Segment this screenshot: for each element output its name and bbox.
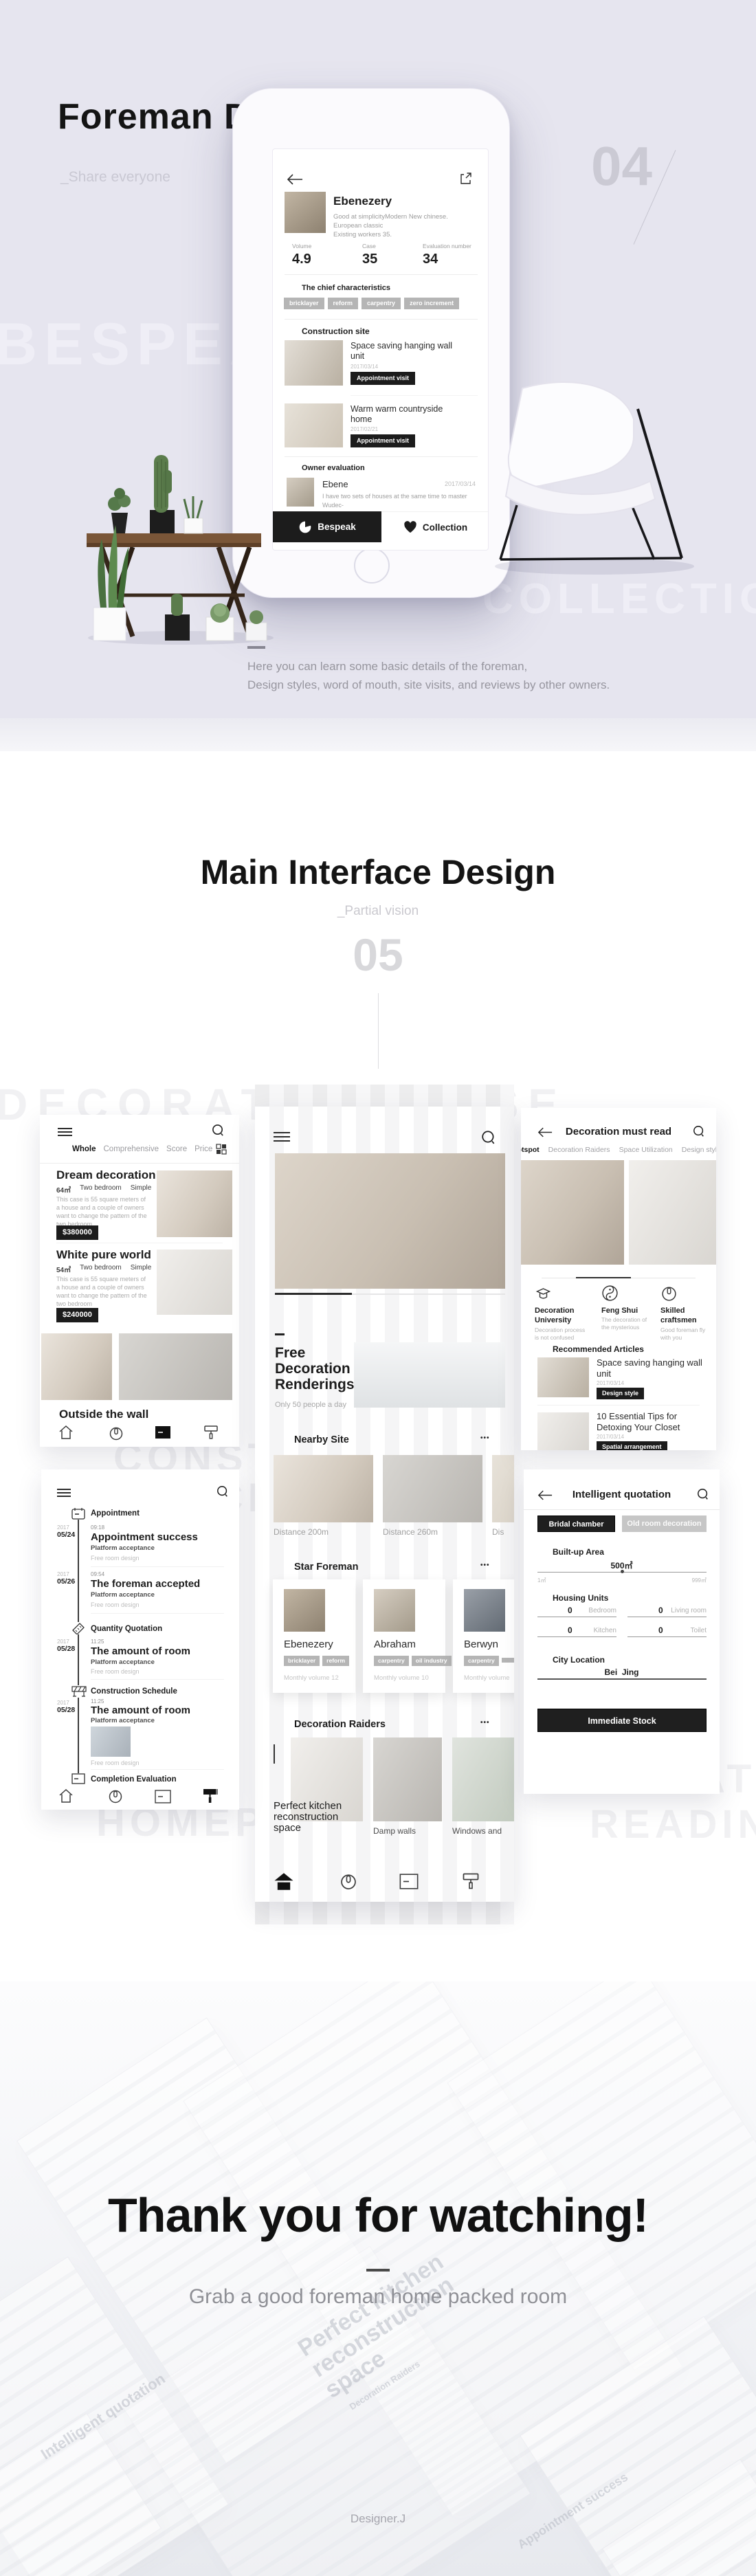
collection-button[interactable]: Collection [381, 511, 489, 542]
carousel-indicator [275, 1293, 352, 1295]
review-date: 2017/03/14 [445, 480, 476, 487]
divider [56, 1243, 223, 1243]
search-icon[interactable] [481, 1130, 496, 1145]
decorate-tab-icon-active[interactable] [202, 1787, 219, 1805]
free-dash [275, 1333, 285, 1335]
area-label: Built-up Area [553, 1547, 604, 1557]
evaluation-title: Owner evaluation [302, 464, 365, 472]
raider-caption: Damp walls [373, 1826, 416, 1836]
raider-photo[interactable] [373, 1737, 442, 1821]
field-underline [537, 1617, 616, 1617]
case-tab-icon[interactable] [155, 1790, 171, 1803]
divider [91, 1613, 224, 1614]
tab-comprehensive[interactable]: Comprehensive [104, 1145, 159, 1153]
screen-homepage: Free Decoration Renderings Only 50 peopl… [255, 1107, 514, 1902]
feature-title: Skilled craftsmen [660, 1306, 715, 1325]
nearby-caption: Distance 260m [383, 1527, 438, 1537]
foreman-card[interactable]: Berwyn carpentry Monthly volume [453, 1579, 514, 1693]
foreman-volume: Monthly volume 10 [374, 1674, 429, 1682]
section-title: Main Interface Design [0, 852, 756, 892]
group-title: Completion Evaluation [91, 1775, 177, 1784]
entry-sub: Platform acceptance [91, 1717, 155, 1724]
back-icon[interactable] [287, 174, 303, 185]
article-photo[interactable] [537, 1412, 589, 1450]
case-title[interactable]: White pure world [56, 1248, 151, 1262]
free-title: Free Decoration Renderings [275, 1345, 361, 1392]
tabbar [41, 1784, 239, 1810]
entry-year: 2017 [57, 1524, 69, 1531]
recommended-title: Recommended Articles [553, 1344, 644, 1354]
area-min: 1㎡ [537, 1577, 546, 1584]
site-photo[interactable] [285, 403, 343, 447]
free-sub: Only 50 people a day [275, 1401, 346, 1409]
entry-date: 05/26 [57, 1577, 75, 1586]
price-badge: $380000 [56, 1225, 98, 1240]
foreman-desc: Good at simplicityModern New chinese. Eu… [333, 212, 448, 239]
entry-note: Free room design [91, 1759, 140, 1766]
foreman-name: Berwyn [464, 1639, 498, 1650]
entry-title[interactable]: The amount of room [91, 1645, 190, 1657]
reviewer-avatar [287, 478, 314, 507]
price-badge: $240000 [56, 1308, 98, 1322]
unit-label-toilet: Toilet [627, 1627, 707, 1634]
section-foreman-details: BESPEAK COLLECTION Foreman Details _Shar… [0, 0, 756, 718]
entry-date: 05/28 [57, 1706, 75, 1714]
divider [537, 1405, 700, 1406]
section-caption: Here you can learn some basic details of… [247, 657, 610, 694]
read-tabs: Hotspot Decoration Raiders Space Utiliza… [521, 1146, 716, 1154]
text-caret [274, 1744, 275, 1764]
screen-decoration-case: Whole Comprehensive Score Price Dream de… [40, 1115, 239, 1447]
divider [40, 1163, 239, 1164]
foreman-avatar [285, 192, 326, 233]
entry-date: 05/24 [57, 1531, 75, 1539]
share-icon[interactable] [460, 172, 472, 184]
tab-whole[interactable]: Whole [72, 1145, 96, 1153]
raider-caption-overlay: Perfect kitchen reconstruction space [274, 1801, 359, 1834]
screen-title: Intelligent quotation [524, 1489, 720, 1500]
heart-icon [403, 521, 417, 533]
strip-photo[interactable] [41, 1333, 112, 1400]
foreman-name: Ebenezery [333, 195, 392, 208]
divider [351, 395, 478, 396]
menu-icon[interactable] [274, 1129, 290, 1144]
divider [285, 274, 478, 275]
search-icon[interactable] [216, 1485, 229, 1498]
field-underline [537, 1636, 616, 1637]
tag[interactable]: bricklayer [284, 298, 324, 309]
screen-quotation: Intelligent quotation Bridal chamber Old… [524, 1469, 720, 1794]
feature-title: Decoration University [535, 1306, 590, 1325]
section-index: 05 [0, 929, 756, 981]
unit-label-bedroom: Bedroom [537, 1607, 616, 1614]
foreman-avatar [464, 1589, 505, 1632]
entry-time: 11:25 [91, 1698, 104, 1705]
schedule-tab-icon[interactable] [108, 1425, 124, 1441]
section-thanks: Perfect kitchen reconstruction space Dec… [0, 1981, 756, 2576]
thanks-dash [366, 2269, 390, 2272]
foreman-name: Ebenezery [284, 1639, 333, 1650]
screen-decoration-read: Decoration must read Hotspot Decoration … [521, 1108, 716, 1450]
strip-photo[interactable] [119, 1333, 232, 1400]
craftsman-icon [660, 1285, 678, 1302]
raider-photo[interactable] [452, 1737, 514, 1821]
article-tag[interactable]: Spatial arrangement [597, 1441, 667, 1450]
feature-sub: Decoration process is not confused [535, 1326, 590, 1342]
tab-raiders[interactable]: Decoration Raiders [548, 1146, 610, 1154]
construction-title: Construction site [302, 326, 370, 336]
search-icon[interactable] [693, 1125, 705, 1137]
feature-title: Feng Shui [601, 1306, 656, 1315]
menu-icon[interactable] [57, 1487, 71, 1499]
tabbar [40, 1419, 239, 1447]
section-subtitle: _Partial vision [0, 904, 756, 919]
entry-photo[interactable] [91, 1726, 131, 1757]
schedule-tab-icon[interactable] [339, 1872, 358, 1891]
characteristics-title: The chief characteristics [302, 284, 390, 292]
grid-view-icon[interactable] [216, 1144, 227, 1155]
field-underline [627, 1617, 707, 1617]
entry-time: 09:18 [91, 1524, 104, 1531]
group-title: Construction Schedule [91, 1687, 177, 1696]
stat-case: Case 35 [362, 243, 377, 267]
article-tag[interactable]: Design style [597, 1388, 644, 1399]
entry-time: 09:54 [91, 1571, 104, 1577]
raider-caption: Windows and [452, 1826, 502, 1836]
ghost-text-collection: COLLECTION [482, 575, 756, 623]
article-title[interactable]: 10 Essential Tips for Detoxing Your Clos… [597, 1411, 710, 1433]
home-tab-icon[interactable] [58, 1788, 74, 1803]
units-label: Housing Units [553, 1593, 608, 1603]
entry-year: 2017 [57, 1700, 69, 1706]
phone-home-button[interactable] [354, 548, 390, 584]
nearby-more-icon[interactable]: ••• [480, 1434, 490, 1442]
case-meta: 64㎡ Two bedroom Simple [56, 1184, 151, 1195]
article-date: 2017/03/14 [597, 1434, 624, 1440]
divider [285, 319, 478, 320]
calendar-icon [71, 1507, 85, 1520]
plants-bench-decoration [81, 430, 287, 647]
ghost-text-reading: READING [590, 1801, 756, 1847]
foreman-name: Abraham [374, 1639, 416, 1650]
home-tab-icon[interactable] [58, 1425, 74, 1440]
nearby-caption: Distance 200m [274, 1527, 329, 1537]
entry-sub: Platform acceptance [91, 1544, 155, 1552]
decorate-tab-icon[interactable] [203, 1424, 219, 1441]
stat-evaluation: Evaluation number 34 [423, 243, 471, 267]
entry-note: Free room design [91, 1555, 140, 1562]
tab-space[interactable]: Space Utilization [619, 1146, 673, 1154]
nearby-caption: Dis [492, 1527, 504, 1537]
site-item-title[interactable]: Space saving hanging wall unit [351, 341, 454, 362]
raiders-more-icon[interactable]: ••• [480, 1719, 490, 1726]
star-more-icon[interactable]: ••• [480, 1562, 490, 1569]
slider-handle[interactable] [621, 1570, 624, 1573]
site-item-date: 2017/03/14 [351, 364, 378, 370]
designer-credit: Designer.J [0, 2512, 756, 2526]
evaluation-icon [71, 1773, 85, 1784]
bespeak-pie-icon [298, 520, 312, 534]
case-meta: 54㎡ Two bedroom Simple [56, 1264, 151, 1274]
search-icon[interactable] [697, 1488, 709, 1500]
city-label: City Location [553, 1655, 605, 1665]
site-photo[interactable] [285, 340, 343, 386]
nearby-photo[interactable] [492, 1455, 514, 1522]
case-photo[interactable] [157, 1250, 232, 1315]
home-tab-icon-active[interactable] [274, 1872, 294, 1891]
site-item-title[interactable]: Warm warm countryside home [351, 404, 454, 425]
case-tab-icon-active[interactable] [155, 1425, 171, 1439]
entry-date: 05/28 [57, 1645, 75, 1653]
bespeak-button[interactable]: Bespeak [273, 511, 381, 542]
group-title: Quantity Quotation [91, 1625, 162, 1633]
tab-style[interactable]: Design style [682, 1146, 716, 1154]
unit-label-living: Living room [627, 1607, 707, 1614]
article-photo[interactable] [537, 1357, 589, 1397]
nearby-photo[interactable] [383, 1455, 482, 1522]
thanks-title: Thank you for watching! [0, 2188, 756, 2243]
decorate-tab-icon[interactable] [461, 1872, 480, 1891]
entry-note: Free room design [91, 1601, 140, 1608]
group-title: Appointment [91, 1509, 140, 1518]
section-index: 04 [591, 135, 652, 198]
toggle-bridal-chamber[interactable]: Bridal chamber [537, 1515, 615, 1532]
entry-year: 2017 [57, 1571, 69, 1577]
screen-schedule: Appointment 2017 05/24 09:18 Appointment… [41, 1469, 239, 1810]
tabbar [255, 1863, 514, 1902]
appointment-visit-button[interactable]: Appointment visit [351, 434, 415, 447]
city-value[interactable]: Bei Jing [524, 1667, 720, 1677]
rendering-sketch-photo[interactable] [354, 1342, 505, 1408]
menu-icon[interactable] [58, 1126, 72, 1138]
entry-title[interactable]: The amount of room [91, 1705, 190, 1716]
tag[interactable]: carpentry [362, 298, 401, 309]
foreman-avatar [284, 1589, 325, 1632]
tag[interactable]: zero increment [404, 298, 459, 309]
case-photo[interactable] [157, 1170, 232, 1237]
feed-tabs: Whole Comprehensive Score Price [72, 1145, 210, 1153]
site-item-date: 2017/02/21 [351, 426, 378, 432]
read-photo[interactable] [521, 1160, 624, 1265]
entry-title[interactable]: The foreman accepted [91, 1578, 200, 1590]
reviewer-name: Ebene [322, 479, 348, 489]
tag[interactable]: reform [328, 298, 359, 309]
search-icon[interactable] [212, 1124, 225, 1137]
foreman-avatar [374, 1589, 415, 1632]
index-line [378, 993, 379, 1069]
immediate-stock-button[interactable]: Immediate Stock [537, 1709, 707, 1732]
raiders-title: Decoration Raiders [294, 1719, 386, 1730]
case-title[interactable]: Dream decoration [56, 1168, 156, 1182]
divider [91, 1679, 224, 1680]
entry-sub: Platform acceptance [91, 1591, 155, 1599]
feature-sub: The decoration of the mysterious [601, 1316, 656, 1331]
screen-title: Decoration must read [521, 1126, 716, 1137]
phone-screen: Ebenezery Good at simplicityModern New c… [272, 148, 489, 551]
tab-price[interactable]: Price [194, 1145, 212, 1153]
divider [524, 1509, 720, 1510]
stat-volume: Volume 4.9 [292, 243, 311, 267]
entry-year: 2017 [57, 1639, 69, 1645]
barrier-icon [71, 1685, 87, 1698]
section-main-interface: Main Interface Design _Partial vision 05… [0, 751, 756, 1981]
divider [285, 456, 478, 457]
foreman-volume: Monthly volume [464, 1674, 510, 1682]
star-title: Star Foreman [294, 1562, 358, 1573]
unit-label-kitchen: Kitchen [537, 1627, 616, 1634]
foreman-tags: carpentryoil industry [374, 1654, 463, 1666]
fengshui-icon [601, 1285, 619, 1302]
carousel-indicator [576, 1277, 631, 1278]
thanks-subtitle: Grab a good foreman home packed room [0, 2285, 756, 2309]
ruler-icon [71, 1622, 85, 1634]
article-date: 2017/03/14 [597, 1380, 624, 1386]
page-subtitle: _Share everyone [60, 169, 170, 186]
foreman-tags: bricklayerreform [284, 1654, 373, 1666]
foreman-tags: carpentry [464, 1654, 514, 1666]
toggle-old-room[interactable]: Old room decoration [622, 1515, 707, 1532]
tab-hotspot[interactable]: Hotspot [521, 1146, 540, 1154]
chair-decoration [474, 371, 701, 577]
article-title[interactable]: Space saving hanging wall unit [597, 1357, 707, 1379]
field-underline [627, 1636, 707, 1637]
characteristics-tags: bricklayerreformcarpentryzero increment [284, 296, 483, 309]
timeline-line [78, 1519, 79, 1773]
field-underline [537, 1678, 707, 1680]
entry-title[interactable]: Appointment success [91, 1531, 198, 1543]
feature-sub: Good foreman fly with you [660, 1326, 715, 1342]
entry-sub: Platform acceptance [91, 1658, 155, 1666]
foreman-card[interactable]: Abraham carpentryoil industry Monthly vo… [363, 1579, 445, 1693]
divider [91, 1769, 224, 1770]
hero-photo[interactable] [275, 1153, 505, 1289]
foreman-card[interactable]: Ebenezery bricklayerreform Monthly volum… [273, 1579, 355, 1693]
area-max: 999㎡ [692, 1577, 707, 1584]
appointment-visit-button[interactable]: Appointment visit [351, 372, 415, 385]
case-desc: This case is 55 square meters of a house… [56, 1195, 150, 1228]
tab-score[interactable]: Score [166, 1145, 187, 1153]
schedule-tab-icon[interactable] [107, 1788, 124, 1804]
case-tab-icon[interactable] [399, 1874, 419, 1889]
entry-time: 11:25 [91, 1639, 104, 1645]
case-desc: This case is 55 square meters of a house… [56, 1275, 150, 1308]
nearby-title: Nearby Site [294, 1434, 349, 1445]
read-photo[interactable] [629, 1160, 716, 1265]
foreman-volume: Monthly volume 12 [284, 1674, 339, 1682]
divider [91, 1566, 224, 1567]
section-separator-band [0, 718, 756, 751]
entry-note: Free room design [91, 1668, 140, 1675]
university-icon [535, 1285, 552, 1302]
nearby-photo[interactable] [274, 1455, 373, 1522]
